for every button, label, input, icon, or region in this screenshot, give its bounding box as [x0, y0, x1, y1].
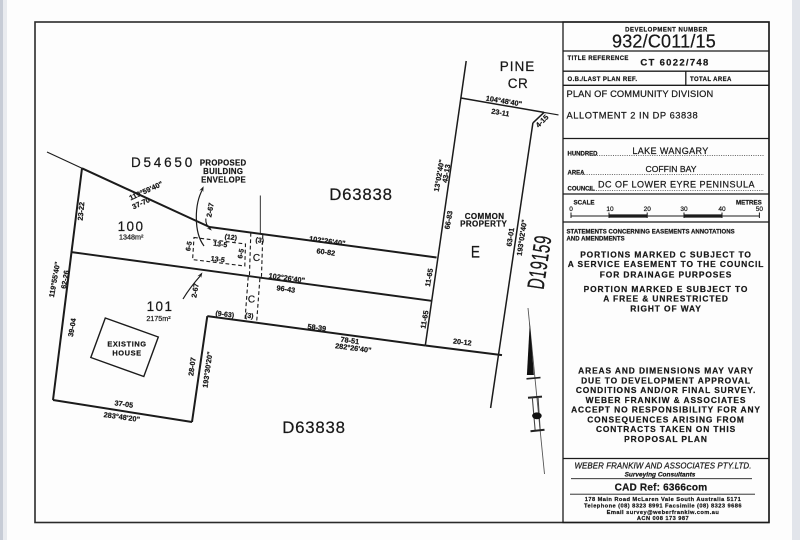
svg-text:CONTRACTS TAKEN ON THIS: CONTRACTS TAKEN ON THIS	[596, 424, 736, 434]
svg-text:23-22: 23-22	[76, 202, 87, 221]
svg-text:178 Main Road McLaren Vale Sou: 178 Main Road McLaren Vale South Austral…	[585, 497, 742, 503]
svg-text:Surveying Consultants: Surveying Consultants	[625, 472, 696, 479]
svg-text:50: 50	[756, 206, 764, 213]
svg-text:20: 20	[644, 206, 652, 213]
svg-text:30: 30	[680, 206, 688, 213]
svg-text:ACN 008 173 987: ACN 008 173 987	[637, 516, 689, 522]
svg-text:CR: CR	[508, 76, 529, 91]
svg-text:A SERVICE EASEMENT TO THE COUN: A SERVICE EASEMENT TO THE COUNCIL	[568, 259, 765, 269]
svg-text:COUNCIL: COUNCIL	[568, 187, 596, 193]
svg-text:PROPERTY: PROPERTY	[460, 219, 507, 228]
svg-text:FOR DRAINAGE PURPOSES: FOR DRAINAGE PURPOSES	[600, 270, 732, 280]
svg-text:(3): (3)	[245, 313, 254, 321]
svg-text:TITLE REFERENCE: TITLE REFERENCE	[568, 56, 629, 62]
svg-text:ACCEPT NO RESPONSIBILITY FOR A: ACCEPT NO RESPONSIBILITY FOR ANY	[571, 405, 761, 415]
svg-text:HOUSE: HOUSE	[112, 349, 141, 358]
svg-text:CAD Ref: 6366com: CAD Ref: 6366com	[615, 483, 708, 494]
svg-text:EXISTING: EXISTING	[107, 340, 146, 349]
svg-text:CONSEQUENCES ARISING FROM: CONSEQUENCES ARISING FROM	[587, 414, 745, 424]
svg-text:STATEMENTS CONCERNING EASEMENT: STATEMENTS CONCERNING EASEMENTS ANNOTATI…	[567, 230, 735, 236]
svg-text:PORTION MARKED E SUBJECT TO: PORTION MARKED E SUBJECT TO	[584, 284, 749, 294]
svg-text:E: E	[471, 243, 480, 262]
svg-text:O.B./LAST PLAN REF.: O.B./LAST PLAN REF.	[568, 77, 638, 83]
svg-text:PROPOSAL PLAN: PROPOSAL PLAN	[624, 434, 708, 444]
svg-text:PORTIONS MARKED C SUBJECT TO: PORTIONS MARKED C SUBJECT TO	[580, 250, 752, 260]
svg-text:PLAN OF COMMUNITY DIVISION: PLAN OF COMMUNITY DIVISION	[567, 89, 714, 99]
svg-text:AREAS AND DIMENSIONS MAY VARY: AREAS AND DIMENSIONS MAY VARY	[578, 366, 754, 376]
svg-text:D54650: D54650	[131, 155, 195, 170]
svg-text:WEBER FRANKIW AND ASSOCIATES P: WEBER FRANKIW AND ASSOCIATES PTY.LTD.	[574, 462, 751, 471]
svg-text:10: 10	[606, 206, 614, 213]
svg-text:40: 40	[718, 206, 726, 213]
svg-text:2175m²: 2175m²	[146, 314, 171, 323]
svg-text:AREA: AREA	[568, 171, 586, 177]
svg-text:Telephone (08) 8323 8991 Facsi: Telephone (08) 8323 8991 Facsimile (08) …	[584, 503, 742, 509]
svg-text:HUNDRED: HUNDRED	[568, 152, 599, 158]
svg-text:101: 101	[147, 299, 174, 314]
svg-text:AND AMENDMENTS: AND AMENDMENTS	[567, 237, 625, 243]
svg-text:C: C	[248, 295, 255, 306]
svg-text:RIGHT OF WAY: RIGHT OF WAY	[630, 304, 701, 314]
svg-text:0: 0	[569, 206, 573, 213]
svg-text:DC OF LOWER EYRE PENINSULA: DC OF LOWER EYRE PENINSULA	[598, 180, 755, 190]
svg-text:CONDITIONS AND/OR FINAL SURVEY: CONDITIONS AND/OR FINAL SURVEY.	[576, 385, 756, 395]
svg-text:D63838: D63838	[329, 185, 393, 204]
svg-text:DUE TO DEVELOPMENT APPROVAL: DUE TO DEVELOPMENT APPROVAL	[581, 375, 751, 385]
svg-text:932/C011/15: 932/C011/15	[612, 32, 716, 52]
svg-text:TOTAL AREA: TOTAL AREA	[690, 77, 732, 83]
svg-text:C: C	[253, 253, 260, 264]
svg-text:CT 6022/748: CT 6022/748	[640, 58, 709, 69]
svg-text:LAKE WANGARY: LAKE WANGARY	[632, 146, 708, 156]
svg-text:PINE: PINE	[500, 59, 536, 74]
svg-text:1348m²: 1348m²	[119, 232, 144, 241]
svg-text:ALLOTMENT 2 IN DP 63838: ALLOTMENT 2 IN DP 63838	[567, 111, 699, 121]
svg-text:PROPOSED: PROPOSED	[200, 158, 247, 167]
svg-text:WEBER FRANKIW & ASSOCIATES: WEBER FRANKIW & ASSOCIATES	[586, 395, 747, 405]
svg-text:(3): (3)	[255, 237, 264, 245]
svg-text:ENVELOPE: ENVELOPE	[201, 176, 246, 185]
svg-text:D63838: D63838	[282, 418, 346, 437]
svg-text:COFFIN BAY: COFFIN BAY	[646, 164, 697, 174]
svg-text:SCALE: SCALE	[574, 200, 595, 207]
svg-text:A FREE & UNRESTRICTED: A FREE & UNRESTRICTED	[603, 294, 729, 304]
